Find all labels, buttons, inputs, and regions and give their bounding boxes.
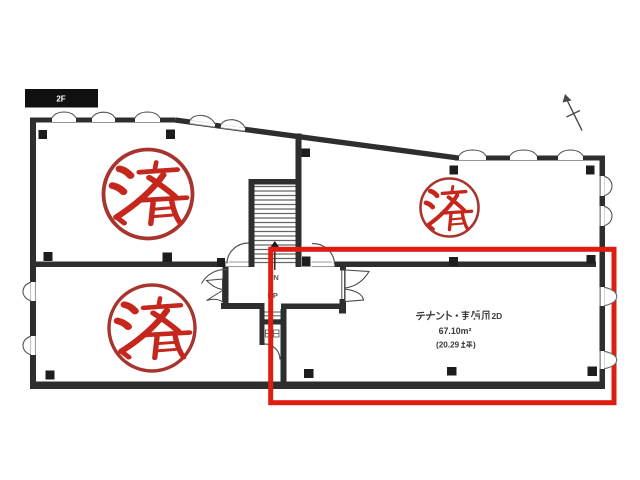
svg-text:2D: 2D [492, 311, 503, 321]
svg-text:67.10m²: 67.10m² [439, 326, 472, 336]
svg-text:2F: 2F [56, 95, 65, 104]
svg-text:(20.29: (20.29 [436, 341, 460, 350]
svg-text:): ) [473, 341, 476, 350]
